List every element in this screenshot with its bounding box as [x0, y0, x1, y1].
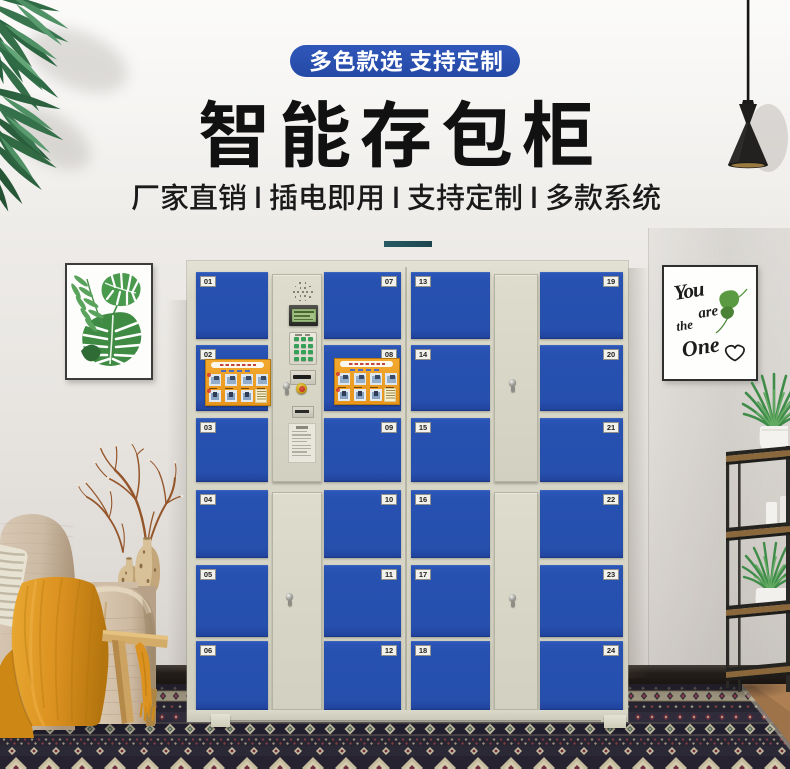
svg-text:One: One — [680, 331, 722, 362]
svg-text:are: are — [697, 303, 720, 322]
svg-text:You: You — [672, 277, 705, 305]
svg-text:the: the — [675, 317, 694, 334]
